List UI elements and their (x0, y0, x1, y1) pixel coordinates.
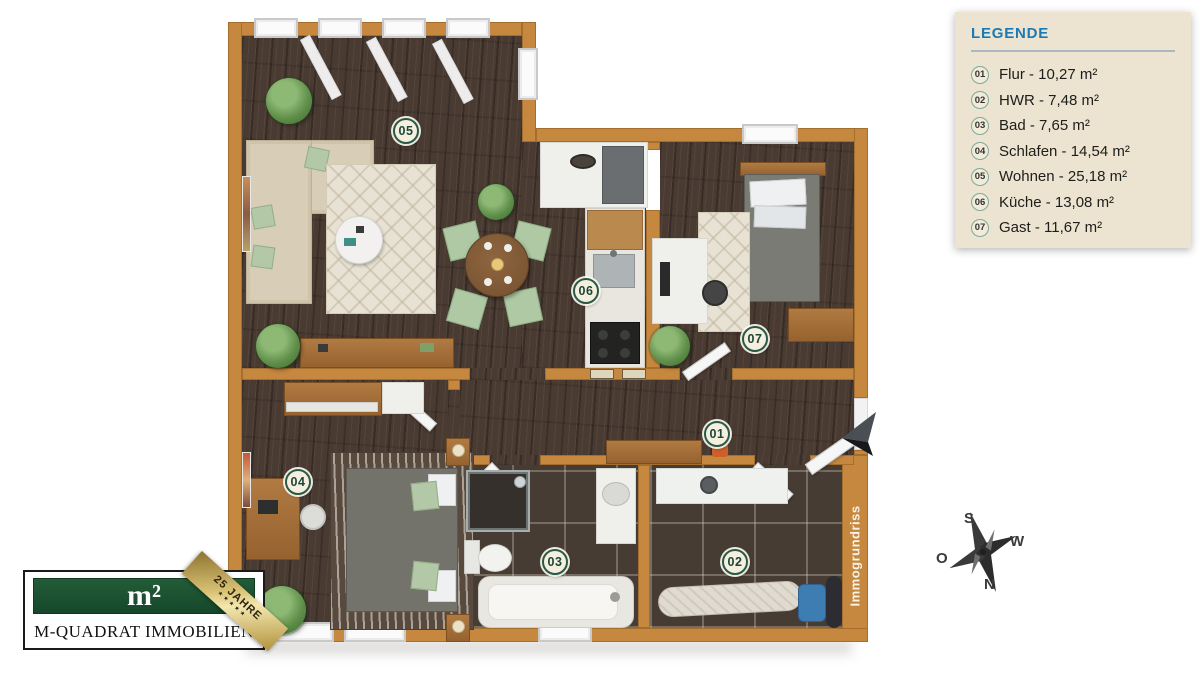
dining-plate-1 (484, 242, 492, 250)
nightstand-lamp-1 (452, 444, 465, 457)
kitchen-faucet (610, 250, 617, 257)
sideboard-decor-2 (420, 343, 434, 352)
compass-letter-east: O (936, 550, 948, 567)
plant-dining (478, 184, 514, 220)
bedroom-chair (300, 504, 326, 530)
plant-guest (650, 326, 690, 366)
bedroom-laptop (258, 500, 278, 514)
guest-monitor (660, 262, 670, 296)
hall-console (606, 440, 702, 464)
wall-left (228, 22, 242, 642)
legend-text-kueche: Küche - 13,08 m² (999, 194, 1114, 211)
room-marker-flur: 01 (704, 421, 730, 447)
floor-opening-bedroom (448, 390, 460, 445)
building-shadow (246, 640, 852, 654)
kitchen-fridge (602, 146, 644, 204)
compass-letter-south: S (964, 510, 974, 527)
wall-right-upper (854, 128, 868, 398)
wall-mid-a (242, 368, 470, 380)
kitchen-sink (593, 254, 635, 288)
compass-letter-north: N (984, 576, 995, 593)
plant-sideboard (256, 324, 300, 368)
room-marker-kueche-label: 06 (579, 284, 594, 298)
bedroom-wardrobe-front (286, 402, 378, 412)
legend-badge-05: 05 (971, 168, 989, 186)
vacuum-blue (798, 584, 826, 622)
legend-panel: LEGENDE 01 Flur - 10,27 m² 02 HWR - 7,48… (955, 12, 1191, 248)
legend-badge-01: 01 (971, 66, 989, 84)
dining-plate-4 (504, 276, 512, 284)
wall-mid-c (732, 368, 854, 380)
legend-item-flur: 01 Flur - 10,27 m² (971, 62, 1175, 88)
legend-title: LEGENDE (971, 25, 1175, 42)
window-living-1 (254, 18, 298, 38)
sofa-pillow-3 (251, 245, 276, 270)
legend-item-gast: 07 Gast - 11,67 m² (971, 215, 1175, 241)
guest-bed-pillow-2 (754, 205, 807, 229)
room-marker-wohnen-label: 05 (399, 124, 414, 138)
dining-plate-2 (504, 244, 512, 252)
bathtub-faucet (610, 592, 620, 602)
window-living-2 (318, 18, 362, 38)
sofa-pillow-2 (250, 204, 275, 229)
wall-bedroom-a (448, 380, 460, 390)
entrance-arrow-icon (842, 412, 876, 456)
bathtub-inner (488, 584, 618, 620)
legend-text-schlafen: Schlafen - 14,54 m² (999, 143, 1130, 160)
legend-badge-02: 02 (971, 91, 989, 109)
legend-text-bad: Bad - 7,65 m² (999, 117, 1090, 134)
coffee-table (335, 216, 383, 264)
legend-text-flur: Flur - 10,27 m² (999, 66, 1097, 83)
legend-item-schlafen: 04 Schlafen - 14,54 m² (971, 139, 1175, 165)
bedroom-cabinet (382, 382, 424, 414)
floor-opening-hwr (755, 455, 810, 465)
room-marker-gast-label: 07 (748, 332, 763, 346)
legend-text-hwr: HWR - 7,48 m² (999, 92, 1099, 109)
guest-bed-pillow-1 (749, 179, 806, 208)
kitchen-wall-plate (570, 154, 596, 169)
floor-opening-dining-hall (470, 368, 545, 380)
window-living-4 (446, 18, 490, 38)
legend-text-gast: Gast - 11,67 m² (999, 219, 1102, 236)
washer-door (700, 476, 718, 494)
wall-top-right (536, 128, 868, 142)
wall-kitchen-guest-a (646, 142, 660, 150)
room-marker-bad: 03 (542, 549, 568, 575)
legend-badge-03: 03 (971, 117, 989, 135)
dining-plate-3 (484, 278, 492, 286)
room-marker-schlafen: 04 (285, 469, 311, 495)
dining-centerpiece (491, 258, 504, 271)
legend-item-hwr: 02 HWR - 7,48 m² (971, 88, 1175, 114)
room-marker-wohnen: 05 (393, 118, 419, 144)
vacuum-hose (826, 576, 842, 628)
room-marker-hwr-label: 02 (728, 555, 743, 569)
coffee-table-book (344, 238, 356, 246)
sideboard-decor-1 (318, 344, 328, 352)
hall-picture-1 (590, 369, 614, 379)
legend-item-kueche: 06 Küche - 13,08 m² (971, 190, 1175, 216)
burner-1 (598, 330, 608, 340)
room-marker-hwr: 02 (722, 549, 748, 575)
nightstand-lamp-2 (452, 620, 465, 633)
burner-2 (620, 330, 630, 340)
wall-art-living (242, 176, 251, 252)
window-guest (742, 124, 798, 144)
logo-symbol: m² (127, 581, 161, 611)
guest-chair (702, 280, 728, 306)
bath-vanity (596, 468, 636, 544)
room-marker-bad-label: 03 (548, 555, 563, 569)
floorplan-scene: 01 02 03 04 05 06 07 Immogrundriss LEGEN… (0, 0, 1200, 675)
wall-bath-hwr (638, 465, 650, 628)
logo-company-name: M-QUADRAT IMMOBILIEN (25, 622, 263, 642)
wall-art-bedroom (242, 452, 251, 508)
kitchen-cooktop (590, 322, 640, 364)
legend-badge-06: 06 (971, 193, 989, 211)
bath-basin (602, 482, 630, 506)
legend-badge-04: 04 (971, 142, 989, 160)
room-marker-gast: 07 (742, 326, 768, 352)
legend-item-bad: 03 Bad - 7,65 m² (971, 113, 1175, 139)
toilet-bowl (478, 544, 512, 572)
compass-letter-west: W (1010, 533, 1024, 550)
room-marker-kueche: 06 (573, 278, 599, 304)
hwr-counter-unit (656, 468, 788, 504)
guest-sideboard (788, 308, 854, 342)
shower-head (514, 476, 526, 488)
bed-pillow-green-2 (411, 561, 440, 592)
legend-divider (971, 50, 1175, 52)
kitchen-worktop-wood (587, 210, 643, 250)
window-living-3 (382, 18, 426, 38)
plant-living-corner (266, 78, 312, 124)
watermark-label: Immogrundriss (848, 521, 863, 607)
floor-opening-bath (490, 455, 540, 465)
bed-pillow-green-1 (411, 481, 440, 512)
hall-picture-2 (622, 369, 646, 379)
legend-badge-07: 07 (971, 219, 989, 237)
legend-text-wohnen: Wohnen - 25,18 m² (999, 168, 1127, 185)
burner-4 (620, 348, 630, 358)
company-logo: m² M-QUADRAT IMMOBILIEN 25 JAHRE ★★★★★ (23, 570, 265, 650)
room-marker-schlafen-label: 04 (291, 475, 306, 489)
legend-item-wohnen: 05 Wohnen - 25,18 m² (971, 164, 1175, 190)
coffee-table-decor (356, 226, 364, 233)
burner-3 (598, 348, 608, 358)
room-marker-flur-label: 01 (710, 427, 725, 441)
window-step (518, 48, 538, 100)
